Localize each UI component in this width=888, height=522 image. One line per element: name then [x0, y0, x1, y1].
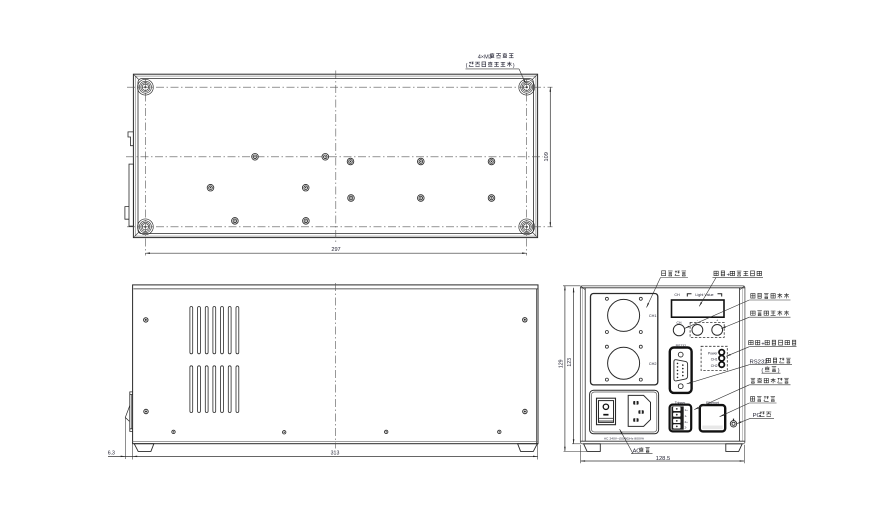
- svg-text:): ): [513, 63, 515, 69]
- svg-text:1+: 1+: [685, 408, 689, 412]
- svg-text:Power: Power: [708, 352, 718, 356]
- svg-text:CH2: CH2: [649, 362, 657, 366]
- svg-text:6.3: 6.3: [108, 451, 115, 457]
- svg-text:(: (: [466, 63, 468, 69]
- svg-text:CH: CH: [674, 293, 680, 297]
- svg-text:2-: 2-: [685, 426, 688, 430]
- svg-text:297: 297: [331, 247, 340, 253]
- svg-text:129: 129: [558, 359, 564, 368]
- svg-text:CH2: CH2: [711, 364, 718, 368]
- svg-text:4×M3: 4×M3: [478, 54, 492, 60]
- svg-text:CH1: CH1: [711, 357, 718, 361]
- svg-text:123: 123: [567, 358, 573, 367]
- svg-text:128.5: 128.5: [656, 456, 671, 462]
- svg-text:109: 109: [544, 152, 550, 161]
- svg-text:+: +: [716, 318, 718, 322]
- svg-text:CH1: CH1: [649, 314, 657, 318]
- svg-text:313: 313: [331, 450, 340, 456]
- svg-text:1-: 1-: [685, 414, 688, 418]
- svg-text:2+: 2+: [685, 420, 689, 424]
- svg-text:Light Value: Light Value: [695, 293, 713, 297]
